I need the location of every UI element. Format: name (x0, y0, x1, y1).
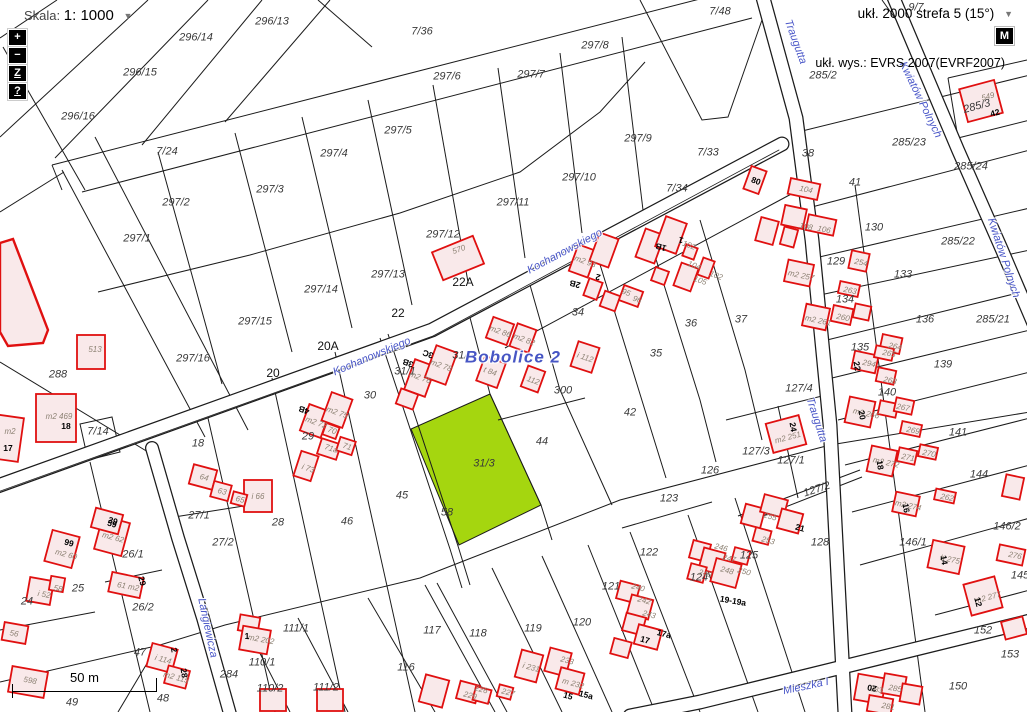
crs-dropdown-icon[interactable]: ▼ (1004, 9, 1013, 19)
scale-bar: 50 m (12, 676, 157, 692)
zoom-in-button[interactable]: + (8, 29, 27, 46)
scale-label: Skala: (24, 8, 60, 23)
zoom-out-button[interactable]: − (8, 47, 27, 64)
scale-bar-label: 50 m (70, 670, 99, 685)
zoom-controls: + − Z ? (8, 29, 26, 101)
scale-dropdown-icon[interactable]: ▼ (123, 11, 132, 21)
vertical-crs-label: ukł. wys.: EVRS 2007(EVRF2007) (815, 56, 1005, 70)
scale-value: 1: 1000 (64, 7, 114, 24)
zoom-extent-button[interactable]: Z (8, 65, 27, 82)
m-button[interactable]: M (995, 27, 1014, 45)
map-canvas[interactable] (0, 0, 1027, 712)
map-viewer: 296/13296/14296/15296/167/367/247/489/72… (0, 0, 1027, 712)
scale-control[interactable]: Skala: 1: 1000 ▼ (24, 7, 132, 24)
crs-label: ukł. 2000 strefa 5 (15°) (858, 6, 995, 21)
help-button[interactable]: ? (8, 83, 27, 100)
crs-control[interactable]: ukł. 2000 strefa 5 (15°) ▼ (858, 6, 1013, 21)
large-building-left (0, 239, 48, 346)
highlighted-parcel-31-3[interactable] (411, 394, 541, 545)
